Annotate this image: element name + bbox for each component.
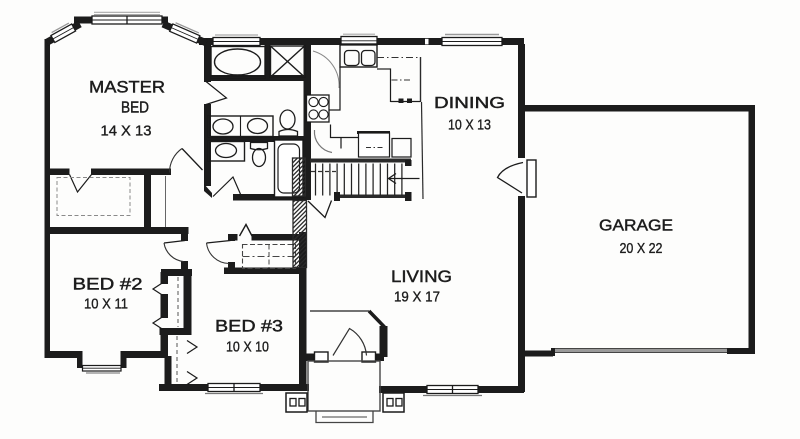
svg-text:10 X 11: 10 X 11: [84, 297, 128, 313]
svg-text:BED #2: BED #2: [73, 275, 143, 294]
svg-text:MASTER: MASTER: [89, 78, 165, 97]
svg-text:BED: BED: [121, 100, 149, 117]
svg-text:10 X 13: 10 X 13: [448, 118, 491, 134]
svg-text:10 X 10: 10 X 10: [226, 340, 269, 356]
svg-text:19 X 17: 19 X 17: [394, 290, 440, 306]
svg-text:14 X 13: 14 X 13: [101, 124, 152, 140]
svg-text:BED #3: BED #3: [215, 317, 283, 336]
svg-text:DINING: DINING: [434, 95, 505, 112]
svg-text:GARAGE: GARAGE: [599, 218, 673, 235]
svg-text:20 X 22: 20 X 22: [620, 241, 663, 257]
svg-text:LIVING: LIVING: [391, 267, 452, 286]
